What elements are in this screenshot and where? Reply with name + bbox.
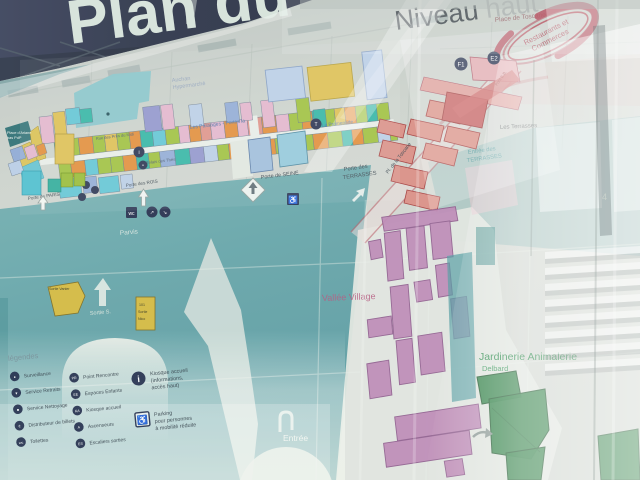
svg-text:wc: wc: [19, 441, 24, 445]
svg-text:●: ●: [14, 375, 17, 379]
svg-text:♿: ♿: [136, 414, 148, 426]
svg-text:€: €: [18, 424, 20, 428]
svg-text:4: 4: [602, 192, 607, 202]
svg-text:▼: ▼: [14, 391, 18, 395]
svg-text:■: ■: [17, 408, 20, 412]
svg-text:PR: PR: [71, 376, 77, 380]
